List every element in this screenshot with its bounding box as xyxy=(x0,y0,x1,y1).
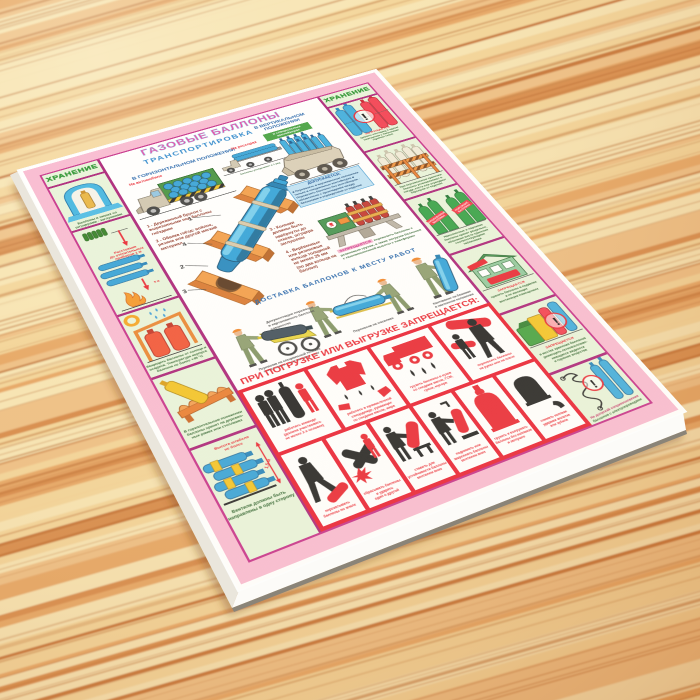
svg-text:3: 3 xyxy=(182,289,189,295)
svg-text:2: 2 xyxy=(179,264,186,270)
svg-text:4: 4 xyxy=(181,242,189,248)
svg-text:5 м: 5 м xyxy=(153,279,160,284)
svg-text:1: 1 xyxy=(187,217,194,223)
